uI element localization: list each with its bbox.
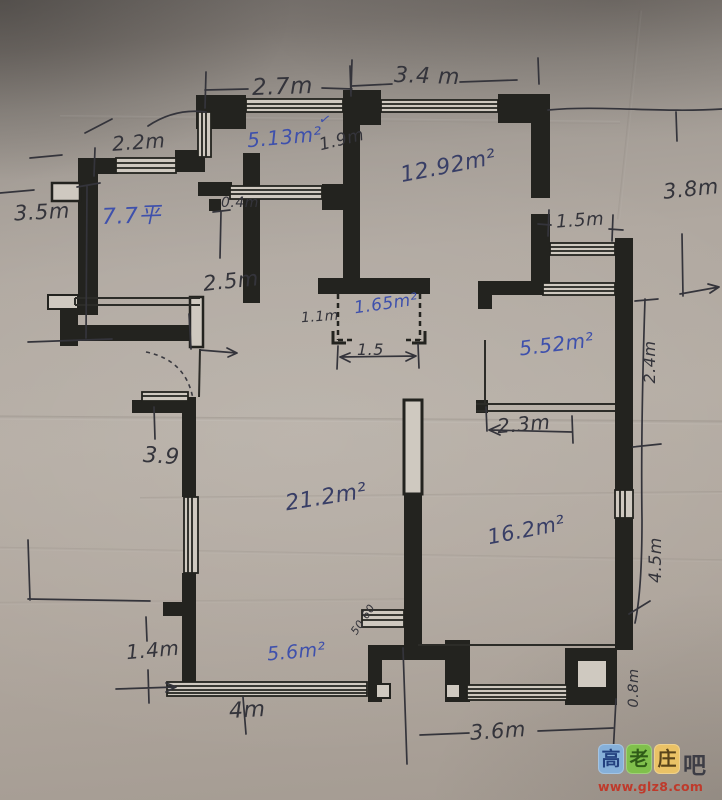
floorplan-photo: 2.7m 3.4 m 2.2m 1.9m 3.8m 3.5m 0.4m 2.5m… — [0, 0, 722, 800]
hollow-walls — [48, 183, 607, 698]
dim-label-2-4m: 2.4m — [642, 332, 662, 392]
watermark-logo: 高 老 庄 吧 www.glz8.com — [598, 744, 722, 794]
watermark-tile-3: 庄 — [654, 744, 680, 774]
dim-label-1-4m: 1.4m — [125, 638, 180, 663]
dim-label-0-4m: 0.4m — [221, 196, 259, 210]
dim-label-3-8m: 3.8m — [662, 176, 720, 203]
dim-label-2-3m: 2.3m — [496, 412, 551, 437]
dim-label-1-5m-window: 1.5m — [555, 210, 604, 231]
dim-label-2-5m: 2.5m — [202, 268, 260, 295]
dim-label-4m: 4m — [228, 699, 266, 723]
dim-label-4-5m: 4.5m — [648, 530, 668, 590]
dim-label-0-8m: 0.8m — [627, 658, 647, 718]
dim-label-3-9: 3.9 — [142, 445, 180, 469]
dim-label-3-4m: 3.4 m — [394, 65, 461, 89]
room-area-label-5-13: 5.13m² — [246, 124, 322, 150]
dim-label-1-1m: 1.1m — [301, 309, 340, 326]
watermark-tile-2: 老 — [626, 744, 652, 774]
dim-label-1-5-arrow: 1.5 — [357, 342, 384, 358]
dim-label-2-2m: 2.2m — [111, 130, 166, 154]
room-area-label-7-7: 7.7平 — [102, 205, 162, 229]
dim-label-3-6m: 3.6m — [469, 719, 526, 744]
watermark-suffix: 吧 — [683, 755, 706, 778]
watermark-tile-1: 高 — [598, 744, 624, 774]
dim-label-3-5m: 3.5m — [13, 201, 70, 225]
watermark-url: www.glz8.com — [598, 779, 722, 794]
dim-label-2-7m: 2.7m — [252, 75, 314, 100]
room-area-label-5-6: 5.6m² — [266, 640, 326, 664]
floorplan-drawing — [0, 0, 722, 800]
